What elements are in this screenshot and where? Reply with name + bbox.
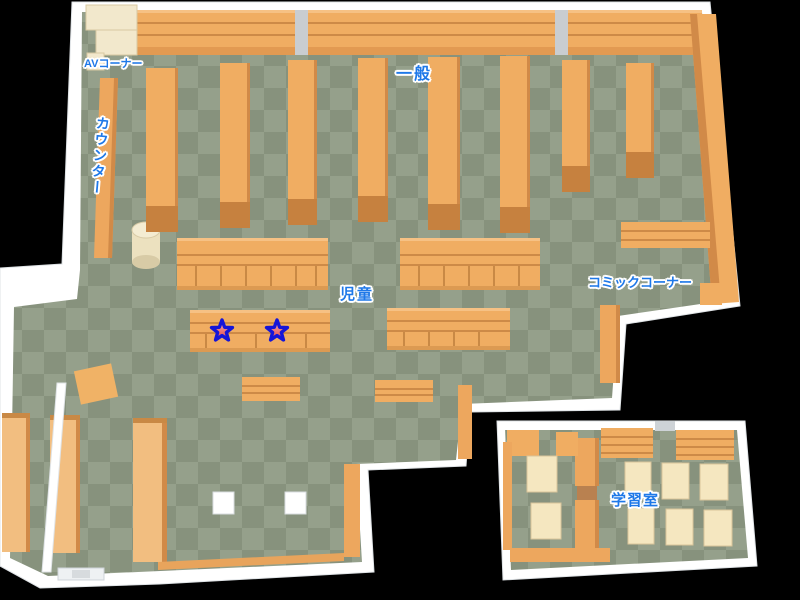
bookshelf <box>146 68 178 232</box>
label-general: 一般 <box>396 60 432 84</box>
low-shelf <box>375 380 433 402</box>
bookshelf <box>2 413 30 552</box>
study-room-door <box>655 421 675 431</box>
bookshelf <box>428 57 460 230</box>
entrance-door <box>58 568 104 580</box>
bookshelf <box>626 63 654 178</box>
wall-shelf <box>458 385 472 459</box>
label-av-corner: AVコーナー <box>84 55 142 71</box>
wall-shelf-row-center <box>308 10 555 55</box>
star-marker[interactable] <box>208 317 236 345</box>
bookshelf <box>220 63 250 228</box>
wall-shelf-row-right <box>568 10 702 55</box>
library-floor-map: AVコーナー 一般 カウンター 児童 コミックコーナー 学習室 <box>0 0 800 600</box>
bookshelf <box>358 58 388 222</box>
bookshelf <box>562 60 590 192</box>
childrens-bookshelf <box>177 238 328 290</box>
floor-map-graphic <box>0 0 800 600</box>
wall-shelf-row-left <box>137 10 295 55</box>
bookshelf <box>133 418 167 562</box>
study-room-partition <box>575 438 599 558</box>
label-children: 児童 <box>340 283 374 304</box>
childrens-bookshelf <box>400 238 540 290</box>
wall-gap <box>555 10 568 55</box>
star-marker[interactable] <box>263 317 291 345</box>
bookshelf <box>288 60 317 225</box>
low-shelf <box>242 377 300 401</box>
label-comic-corner: コミックコーナー <box>588 272 692 291</box>
label-study-room: 学習室 <box>611 489 659 510</box>
white-table <box>285 492 306 514</box>
childrens-bookshelf <box>387 308 510 350</box>
white-table <box>213 492 234 514</box>
wall-shelf <box>344 464 360 557</box>
bookshelf <box>500 56 530 233</box>
wall-gap <box>295 10 308 55</box>
